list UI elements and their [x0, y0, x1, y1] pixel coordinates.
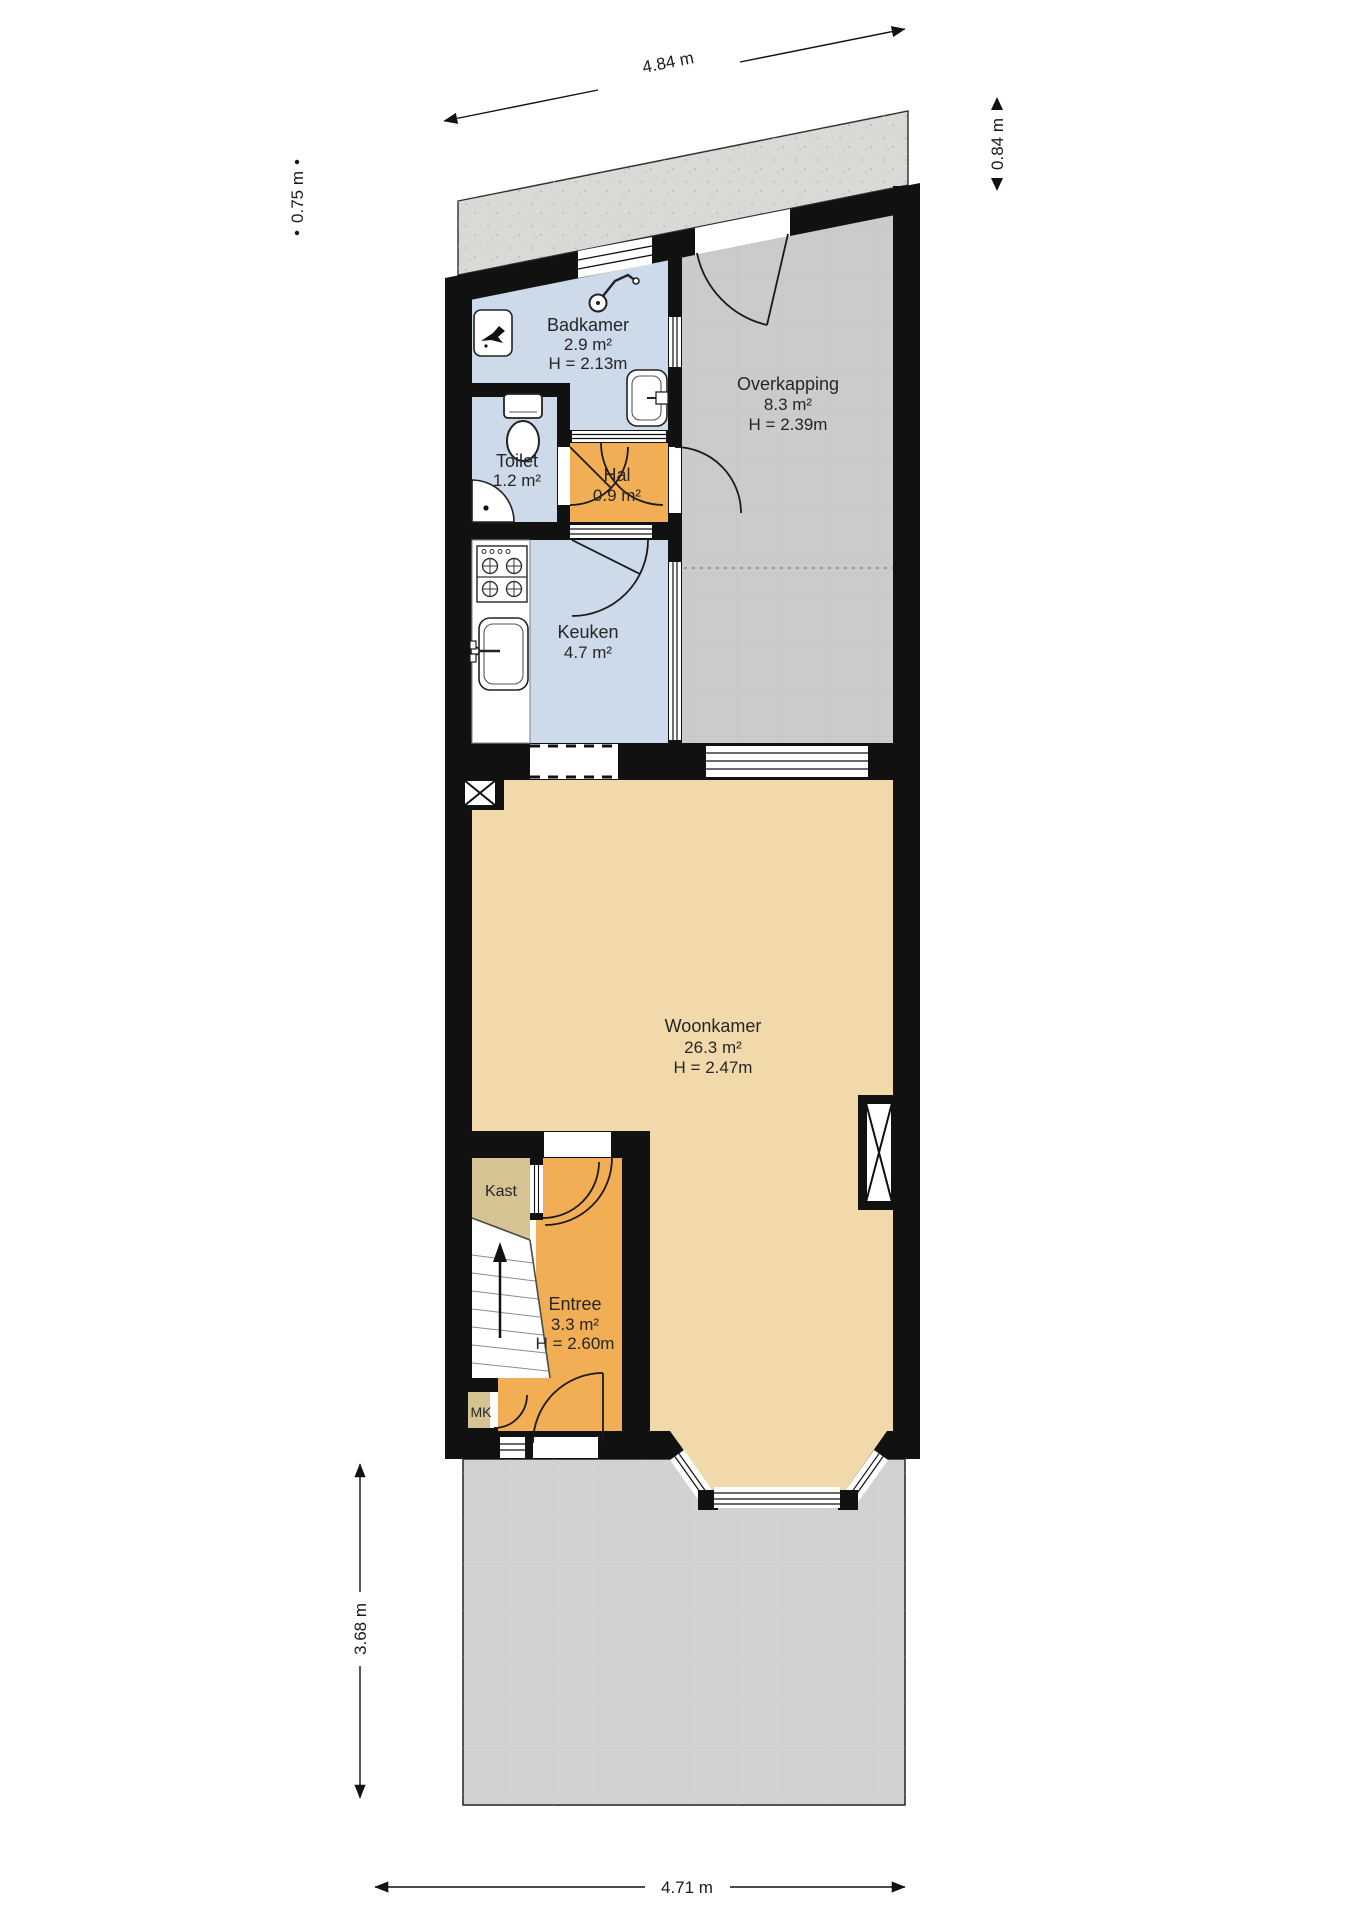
window-keuken-overkapping	[669, 562, 681, 740]
label-entree: Entree	[548, 1294, 601, 1314]
dimension-top: 4.84 m	[444, 29, 905, 121]
svg-text:4.84 m: 4.84 m	[641, 48, 696, 77]
opening-hal-keuken	[570, 525, 652, 538]
label-entree-height: H = 2.60m	[536, 1334, 615, 1353]
window-overkapping-woonkamer	[706, 746, 868, 777]
door-kast-frame	[530, 1158, 543, 1220]
svg-text:0.84 m: 0.84 m	[988, 118, 1007, 170]
label-keuken-area: 4.7 m²	[564, 643, 613, 662]
dimension-left-bottom: 3.68 m	[351, 1464, 370, 1798]
bay-window-center	[714, 1487, 840, 1508]
kitchen-sink-icon	[470, 618, 528, 690]
shaft-icon-left	[464, 780, 496, 806]
door-toilet	[558, 447, 570, 505]
label-woonkamer-area: 26.3 m²	[684, 1038, 742, 1057]
dimension-bottom: 4.71 m	[375, 1878, 905, 1897]
dimension-left-top: 0.75 m	[288, 160, 307, 235]
label-keuken: Keuken	[557, 622, 618, 642]
label-badkamer-area: 2.9 m²	[564, 335, 613, 354]
label-hal-area: 0.9 m²	[593, 486, 642, 505]
opening-badkamer-hal	[572, 431, 666, 442]
floorplan-canvas: Badkamer 2.9 m² H = 2.13m Toilet 1.2 m² …	[0, 0, 1358, 1920]
svg-text:4.71 m: 4.71 m	[661, 1878, 713, 1897]
label-badkamer: Badkamer	[547, 315, 629, 335]
label-woonkamer-height: H = 2.47m	[674, 1058, 753, 1077]
washbasin-icon	[627, 370, 668, 426]
label-overkapping-area: 8.3 m²	[764, 395, 813, 414]
floorplan-svg: Badkamer 2.9 m² H = 2.13m Toilet 1.2 m² …	[0, 0, 1358, 1920]
label-badkamer-height: H = 2.13m	[549, 354, 628, 373]
stove-icon	[477, 546, 527, 602]
label-toilet-area: 1.2 m²	[493, 471, 542, 490]
washing-machine-icon	[474, 310, 512, 356]
open-connection-keuken-woonkamer	[530, 744, 618, 779]
label-hal: Hal	[603, 465, 630, 485]
opening-hal-overkapping	[669, 447, 681, 513]
front-window	[500, 1437, 525, 1458]
label-kast: Kast	[485, 1183, 518, 1200]
label-overkapping: Overkapping	[737, 374, 839, 394]
wall-right	[893, 186, 920, 1459]
wall-entree-right	[622, 1131, 650, 1431]
label-woonkamer: Woonkamer	[665, 1016, 762, 1036]
svg-text:0.75 m: 0.75 m	[288, 171, 307, 223]
front-door	[533, 1437, 598, 1458]
label-overkapping-height: H = 2.39m	[749, 415, 828, 434]
dimension-right-top: 0.84 m	[988, 97, 1007, 191]
svg-text:3.68 m: 3.68 m	[351, 1603, 370, 1655]
shaft-icon-right	[866, 1103, 892, 1202]
door-woonkamer-entree	[544, 1132, 611, 1157]
window-badkamer-overkapping	[669, 317, 681, 367]
label-toilet: Toilet	[496, 451, 538, 471]
label-entree-area: 3.3 m²	[551, 1315, 600, 1334]
label-meterkast: MK	[471, 1404, 493, 1420]
wall-left	[445, 278, 472, 1459]
front-yard	[463, 1459, 905, 1805]
